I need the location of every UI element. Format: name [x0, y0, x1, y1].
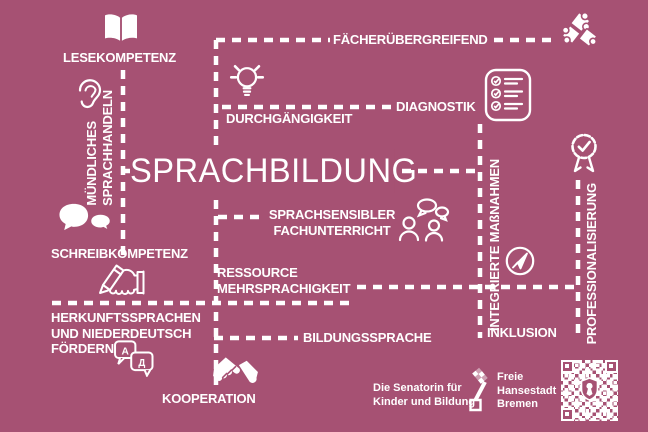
muendliches-line2: SPRACHHANDELN: [100, 90, 115, 206]
open-book-icon: [102, 13, 140, 45]
node-sprachsensibler-fachunterricht: SPRACHSENSIBLER FACHUNTERRICHT: [262, 207, 402, 239]
bremen-logo-text: Freie Hansestadt Bremen: [497, 371, 556, 412]
sprachsensibler-line1: SPRACHSENSIBLER: [262, 207, 402, 223]
pencil-hand-icon: [95, 259, 147, 299]
node-muendliches-sprachhandeln: MÜNDLICHES SPRACHHANDELN: [84, 90, 115, 206]
bremen-line1: Freie: [497, 371, 556, 385]
herkunft-line2: UND NIEDERDEUTSCH: [51, 326, 201, 342]
checklist-icon: [484, 68, 532, 122]
qr-icon: [561, 360, 618, 421]
lightbulb-icon: [228, 62, 266, 104]
node-inklusion: INKLUSION: [487, 325, 557, 341]
node-professionalisierung: PROFESSIONALISIERUNG: [584, 183, 599, 344]
node-durchgaengigkeit: DURCHGÄNGIGKEIT: [226, 111, 352, 127]
node-ressource-mehrsprachigkeit: RESSOURCE MEHRSPRACHIGKEIT: [217, 265, 350, 297]
muendliches-line1: MÜNDLICHES: [84, 121, 99, 206]
qr-finder-top-left: [561, 360, 574, 373]
sprachsensibler-line2: FACHUNTERRICHT: [262, 223, 402, 239]
badge-icon: [565, 130, 603, 178]
page-title: SPRACHBILDUNG: [130, 149, 395, 193]
infographic-sprachbildung: SPRACHBILDUNG LESEKOMPETENZ MÜNDLICHES S…: [0, 0, 648, 432]
speech-bubbles-icon: [58, 202, 122, 244]
node-integrierte-massnahmen: INTEGRIERTE MAßNAHMEN: [487, 159, 502, 331]
ressource-line1: RESSOURCE: [217, 265, 350, 281]
qr-finder-top-right: [605, 360, 618, 373]
node-lesekompetenz: LESEKOMPETENZ: [63, 50, 176, 66]
node-bildungssprache: BILDUNGSSPRACHE: [303, 330, 431, 346]
senatorin-line2: Kinder und Bildung: [373, 396, 475, 410]
translate-letter-a: A: [122, 346, 130, 357]
compass-icon: [504, 245, 536, 277]
senatorin-line1: Die Senatorin für: [373, 382, 475, 396]
senatorin-text: Die Senatorin für Kinder und Bildung: [373, 382, 475, 409]
node-kooperation: KOOPERATION: [162, 391, 256, 407]
bremen-line2: Hansestadt: [497, 385, 556, 399]
bremen-key-icon: [461, 365, 493, 413]
qr-shield-icon: [580, 377, 599, 401]
qr-finder-bottom-left: [561, 408, 574, 421]
puzzle-icon: [551, 11, 606, 66]
ressource-line2: MEHRSPRACHIGKEIT: [217, 281, 350, 297]
herkunft-line1: HERKUNFTSSPRACHEN: [51, 310, 201, 326]
people-talk-icon: [396, 196, 450, 250]
node-diagnostik: DIAGNOSTIK: [396, 99, 476, 115]
node-faecheruebergreifend: FÄCHERÜBERGREIFEND: [333, 32, 488, 48]
translate-letter-d: Д: [138, 358, 145, 369]
handshake-icon: [212, 352, 259, 391]
translate-icon: A Д: [113, 340, 155, 377]
bremen-line3: Bremen: [497, 398, 556, 412]
